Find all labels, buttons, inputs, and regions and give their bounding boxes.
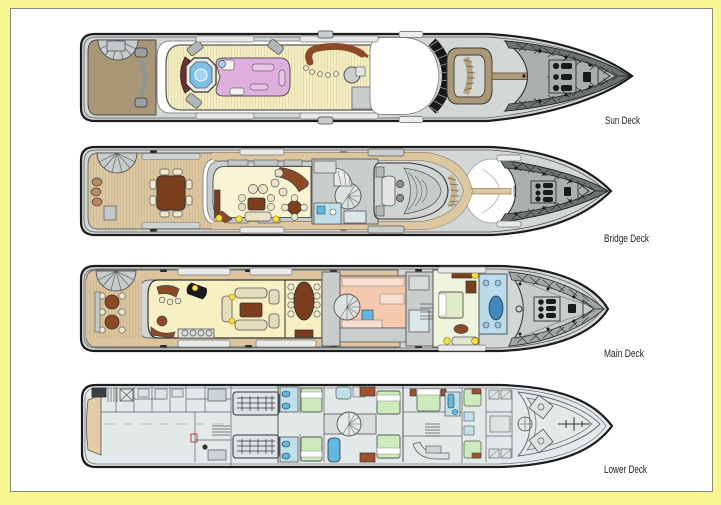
svg-text:Lower Deck: Lower Deck xyxy=(604,464,647,476)
svg-text:Bridge Deck: Bridge Deck xyxy=(604,233,649,245)
svg-text:Main Deck: Main Deck xyxy=(604,348,644,360)
svg-text:Sun Deck: Sun Deck xyxy=(605,115,640,127)
